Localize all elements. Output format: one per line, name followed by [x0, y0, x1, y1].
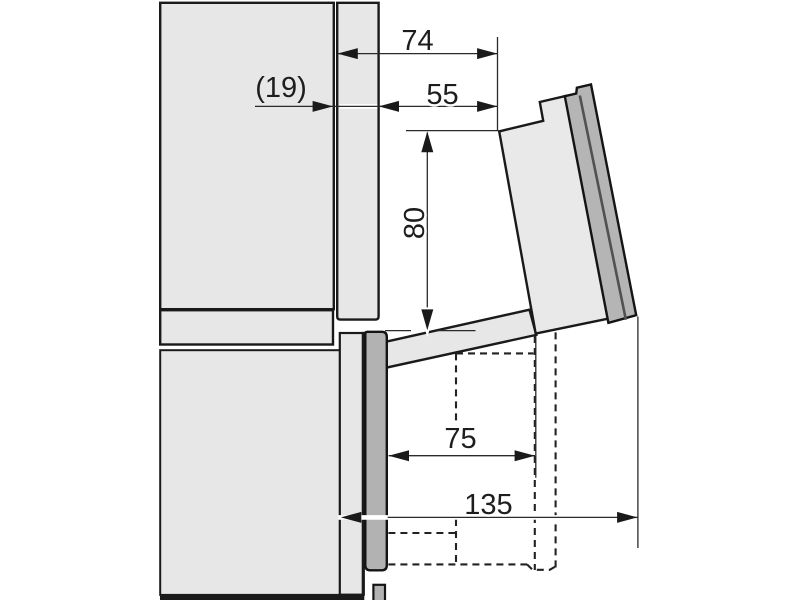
svg-text:75: 75 — [444, 423, 476, 455]
svg-text:135: 135 — [464, 489, 512, 521]
svg-text:74: 74 — [401, 25, 433, 57]
svg-text:55: 55 — [426, 79, 458, 111]
svg-text:80: 80 — [399, 207, 431, 239]
svg-text:(19): (19) — [255, 72, 307, 104]
